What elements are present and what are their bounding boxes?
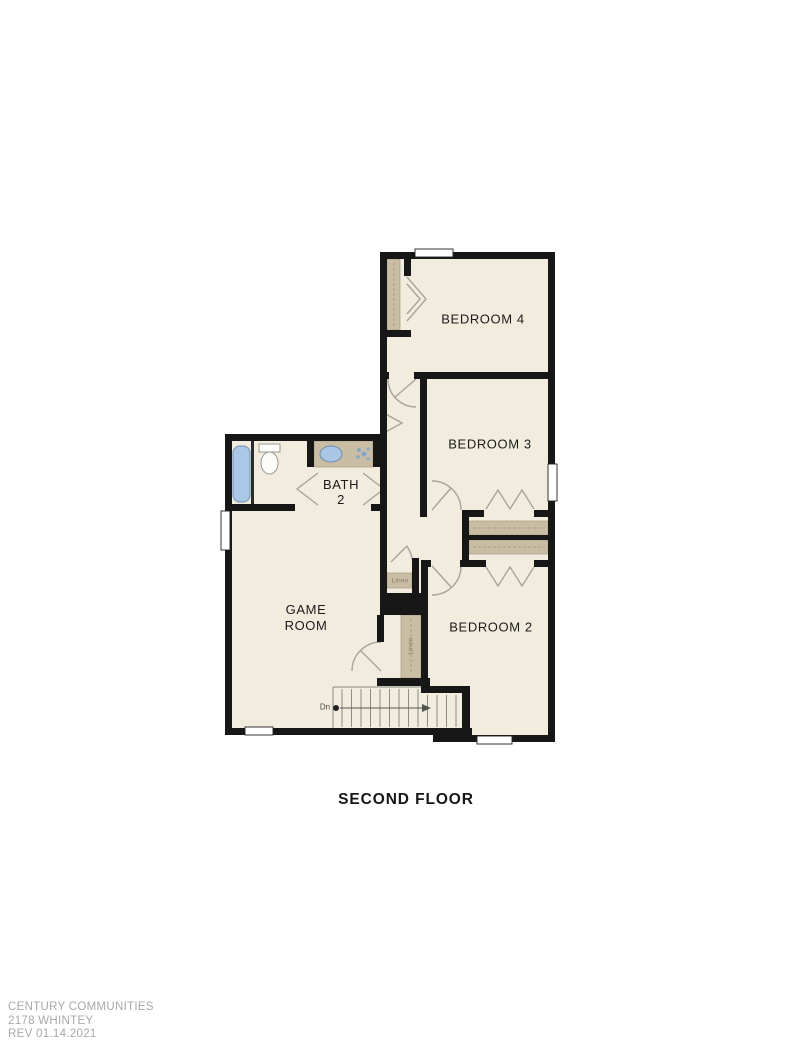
plan-title: SECOND FLOOR bbox=[338, 791, 474, 809]
window-game-room-south bbox=[245, 727, 273, 735]
bedroom4-closet-shelf bbox=[387, 259, 400, 330]
vanity-sink bbox=[314, 441, 373, 467]
tub-divider-wall bbox=[251, 441, 254, 504]
window-bedroom3 bbox=[548, 464, 557, 501]
bathtub bbox=[233, 446, 250, 502]
window-game-room bbox=[221, 511, 230, 550]
floorplan-page: BEDROOM 4 BEDROOM 3 BEDROOM 2 GAME ROOM … bbox=[0, 0, 810, 1048]
wall-chase-block bbox=[380, 593, 422, 615]
room-label-bedroom-4: BEDROOM 4 bbox=[441, 312, 524, 327]
bath2-line1: BATH bbox=[323, 477, 359, 492]
floor-mask bbox=[380, 735, 433, 745]
footer-brand: CENTURY COMMUNITIES bbox=[8, 1001, 154, 1015]
room-label-bath-2: BATH 2 bbox=[323, 477, 359, 507]
window-bedroom2 bbox=[477, 736, 512, 744]
closet-label-linen-upper: Linen bbox=[392, 578, 409, 585]
room-label-game-room: GAME ROOM bbox=[285, 602, 328, 634]
floorplan-drawing bbox=[0, 0, 810, 1048]
footer-block: CENTURY COMMUNITIES 2178 WHINTEY REV 01.… bbox=[8, 1001, 154, 1042]
footer-revision: REV 01.14.2021 bbox=[8, 1028, 154, 1042]
room-label-bedroom-3: BEDROOM 3 bbox=[448, 437, 531, 452]
game-room-line2: ROOM bbox=[285, 618, 328, 634]
stairs-down-label: Dn bbox=[320, 700, 330, 715]
footer-plan-number: 2178 WHINTEY bbox=[8, 1015, 154, 1029]
bath2-line2: 2 bbox=[323, 492, 359, 507]
game-room-line1: GAME bbox=[285, 602, 328, 618]
window-bedroom4 bbox=[415, 249, 453, 257]
toilet bbox=[259, 444, 280, 474]
room-label-bedroom-2: BEDROOM 2 bbox=[449, 620, 532, 635]
closet-label-linen-lower: Linen bbox=[408, 638, 415, 655]
